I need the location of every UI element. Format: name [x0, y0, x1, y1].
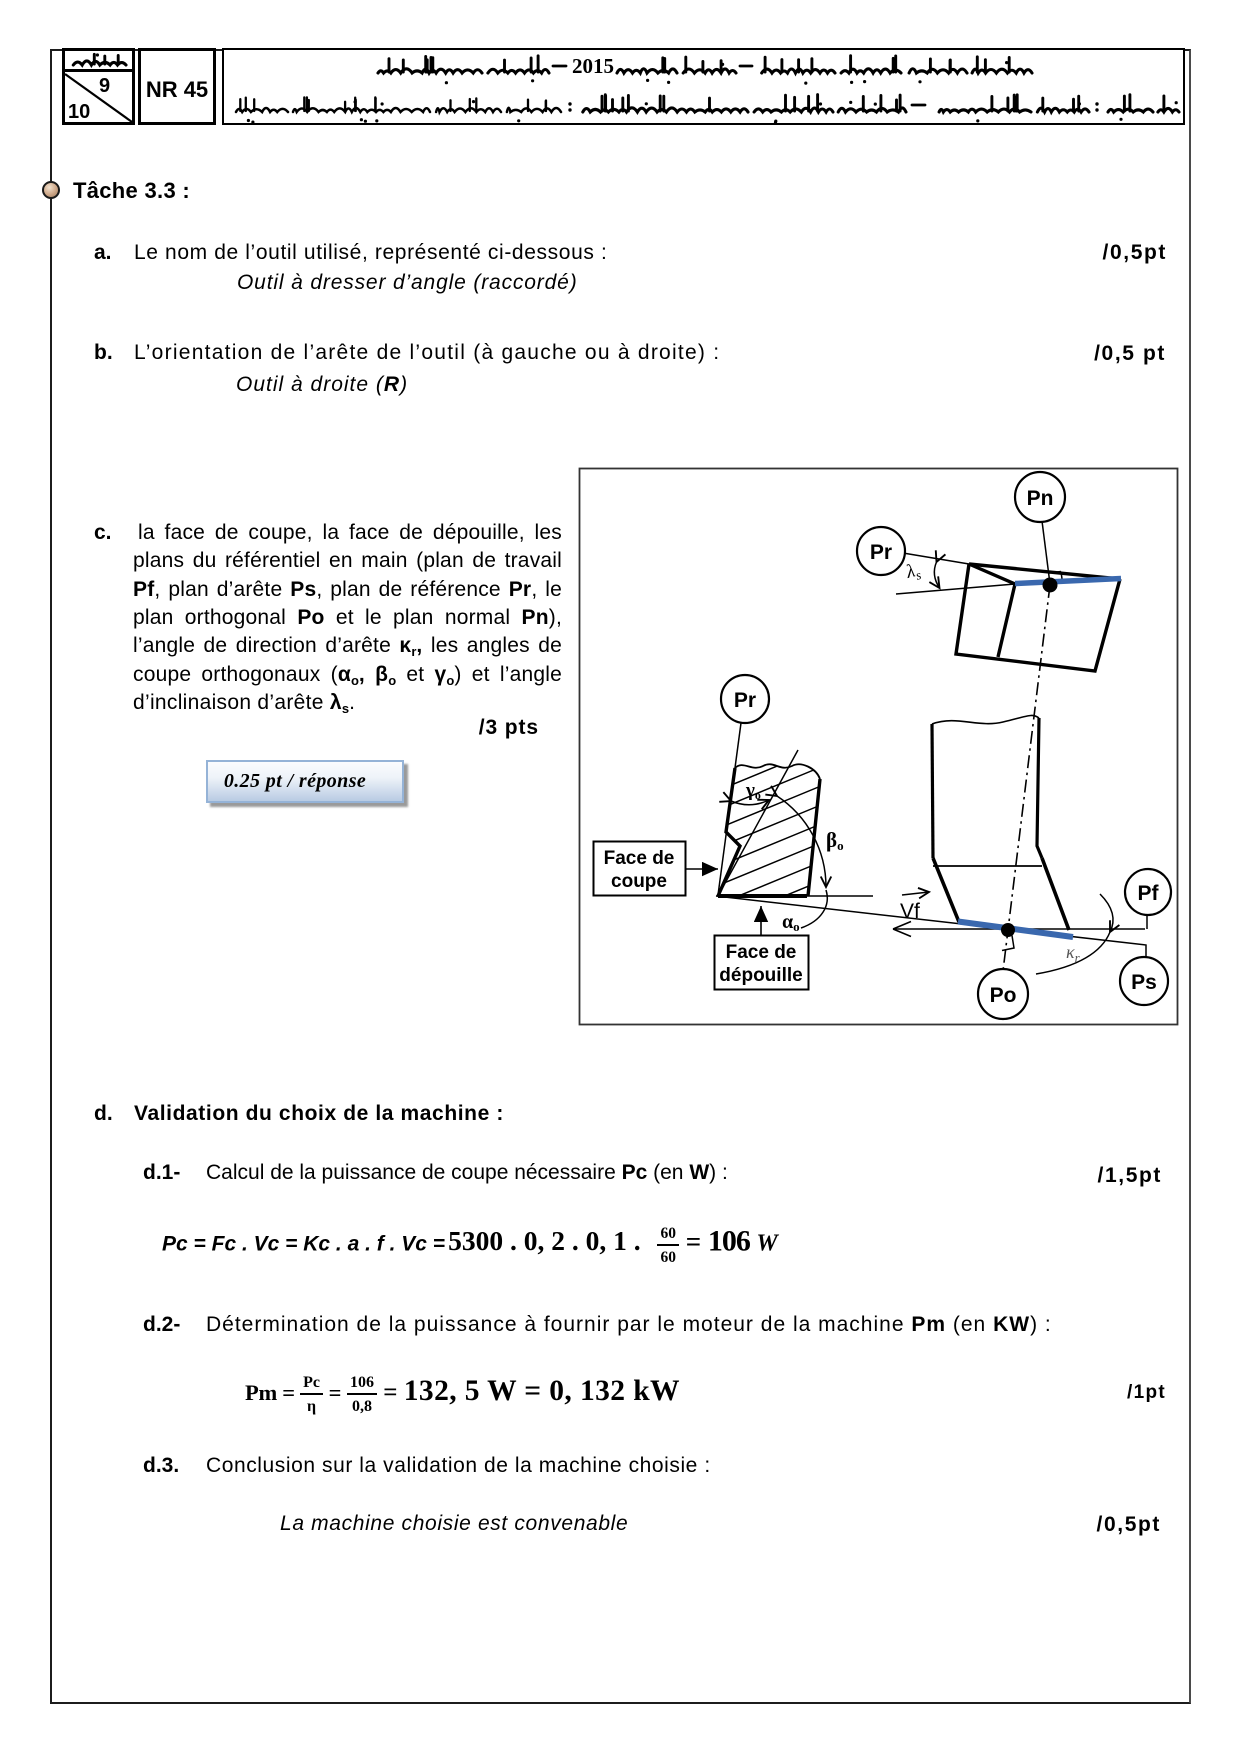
svg-text:Pr: Pr — [734, 689, 756, 712]
svg-text:Pr: Pr — [870, 541, 892, 564]
svg-text:Face de: Face de — [726, 942, 797, 963]
svg-text:coupe: coupe — [611, 871, 667, 892]
svg-text:2015: 2015 — [572, 54, 614, 78]
svg-text:Ps: Ps — [1131, 971, 1157, 994]
svg-text:Vf: Vf — [900, 900, 920, 923]
svg-text:dépouille: dépouille — [719, 965, 802, 986]
svg-text:Face de: Face de — [604, 848, 675, 869]
svg-text:Pn: Pn — [1027, 487, 1054, 510]
svg-text:Pf: Pf — [1138, 882, 1160, 905]
svg-text:Po: Po — [990, 984, 1017, 1007]
